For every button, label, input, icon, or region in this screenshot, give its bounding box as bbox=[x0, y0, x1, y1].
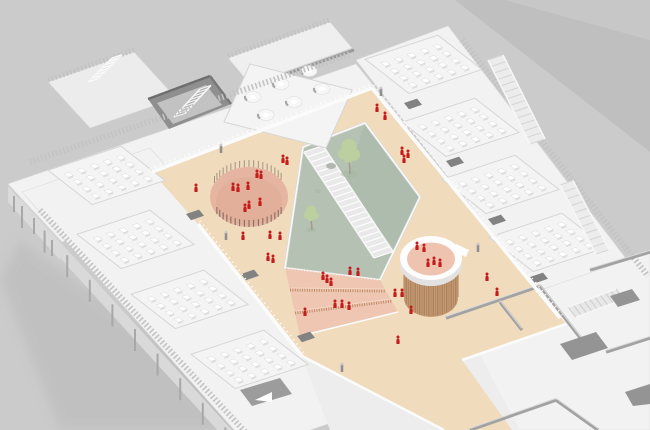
figure-body bbox=[348, 270, 351, 275]
bollard-cap bbox=[220, 144, 223, 147]
bollard-cap bbox=[380, 87, 383, 90]
red-figure bbox=[406, 150, 409, 159]
figure-body bbox=[255, 173, 258, 178]
figure-body bbox=[383, 115, 386, 120]
figure-body bbox=[415, 245, 418, 250]
figure-head bbox=[401, 147, 404, 150]
figure-head bbox=[237, 184, 240, 187]
figure-head bbox=[407, 150, 410, 153]
figure-head bbox=[279, 232, 282, 235]
figure-head bbox=[433, 257, 436, 260]
red-figure bbox=[268, 231, 271, 240]
red-figure bbox=[495, 288, 498, 297]
red-figure bbox=[383, 112, 386, 121]
figure-head bbox=[341, 300, 344, 303]
figure-head bbox=[247, 182, 250, 185]
figure-body bbox=[236, 187, 239, 192]
red-figure bbox=[347, 302, 350, 311]
figure-head bbox=[486, 273, 489, 276]
red-figure bbox=[194, 184, 197, 193]
bollard-cap bbox=[477, 243, 480, 246]
tree-canopy bbox=[307, 215, 313, 221]
figure-head bbox=[416, 242, 419, 245]
bollard bbox=[477, 243, 480, 252]
figure-head bbox=[195, 184, 198, 187]
figure-body bbox=[396, 339, 399, 344]
red-figure bbox=[241, 232, 244, 241]
figure-head bbox=[269, 231, 272, 234]
figure-body bbox=[422, 247, 425, 252]
red-figure bbox=[438, 259, 441, 268]
red-figure bbox=[243, 204, 246, 213]
table-top bbox=[263, 113, 269, 117]
red-figure bbox=[325, 275, 328, 284]
red-figure bbox=[426, 259, 429, 268]
figure-head bbox=[394, 289, 397, 292]
table-top bbox=[319, 87, 325, 91]
figure-head bbox=[272, 255, 275, 258]
bollard-cap bbox=[225, 231, 228, 234]
red-figure bbox=[258, 198, 261, 207]
red-figure bbox=[285, 157, 288, 166]
figure-body bbox=[333, 303, 336, 308]
figure-body bbox=[259, 174, 262, 179]
figure-head bbox=[330, 278, 333, 281]
red-figure bbox=[278, 232, 281, 241]
figure-body bbox=[329, 281, 332, 286]
architectural-axonometric-rendering bbox=[0, 0, 650, 430]
red-figure bbox=[409, 306, 412, 315]
tree-shadow bbox=[306, 228, 317, 233]
red-figure bbox=[393, 289, 396, 298]
red-figure bbox=[321, 272, 324, 281]
figure-body bbox=[243, 207, 246, 212]
bollard bbox=[341, 363, 344, 372]
figure-body bbox=[194, 187, 197, 192]
red-figure bbox=[340, 300, 343, 309]
figure-head bbox=[357, 268, 360, 271]
bollard bbox=[220, 144, 223, 153]
figure-head bbox=[410, 306, 413, 309]
red-figure bbox=[303, 308, 306, 317]
figure-head bbox=[242, 232, 245, 235]
figure-body bbox=[268, 234, 271, 239]
figure-head bbox=[348, 302, 351, 305]
figure-body bbox=[393, 292, 396, 297]
red-figure bbox=[432, 257, 435, 266]
figure-body bbox=[285, 160, 288, 165]
figure-head bbox=[248, 201, 251, 204]
red-figure bbox=[375, 104, 378, 113]
figure-body bbox=[281, 158, 284, 163]
figure-body bbox=[375, 107, 378, 112]
red-figure bbox=[348, 267, 351, 276]
bollard-cap bbox=[341, 363, 344, 366]
rock bbox=[326, 163, 336, 169]
figure-head bbox=[267, 253, 270, 256]
round-table bbox=[286, 97, 302, 108]
tree-canopy bbox=[344, 154, 353, 163]
round-table bbox=[245, 92, 261, 103]
figure-body bbox=[356, 271, 359, 276]
red-figure bbox=[356, 268, 359, 277]
figure-body bbox=[409, 309, 412, 314]
figure-head bbox=[349, 267, 352, 270]
figure-head bbox=[286, 157, 289, 160]
bollard bbox=[225, 231, 228, 240]
red-figure bbox=[422, 244, 425, 253]
round-table bbox=[314, 84, 330, 95]
figure-head bbox=[401, 289, 404, 292]
red-figure bbox=[329, 278, 332, 287]
red-figure bbox=[281, 155, 284, 164]
table-top bbox=[250, 95, 256, 99]
red-figure bbox=[402, 155, 405, 164]
red-figure bbox=[271, 255, 274, 264]
red-figure bbox=[266, 253, 269, 262]
figure-body bbox=[258, 201, 261, 206]
red-figure bbox=[333, 300, 336, 309]
figure-head bbox=[334, 300, 337, 303]
figure-head bbox=[326, 275, 329, 278]
axonometric-scene bbox=[0, 0, 650, 430]
red-figure bbox=[415, 242, 418, 251]
figure-head bbox=[322, 272, 325, 275]
figure-body bbox=[495, 291, 498, 296]
figure-head bbox=[384, 112, 387, 115]
figure-head bbox=[282, 155, 285, 158]
figure-body bbox=[432, 260, 435, 265]
figure-head bbox=[423, 244, 426, 247]
figure-body bbox=[485, 276, 488, 281]
figure-head bbox=[304, 308, 307, 311]
figure-head bbox=[259, 198, 262, 201]
figure-body bbox=[438, 262, 441, 267]
figure-head bbox=[427, 259, 430, 262]
figure-body bbox=[231, 186, 234, 191]
figure-head bbox=[244, 204, 247, 207]
figure-head bbox=[256, 170, 259, 173]
figure-body bbox=[426, 262, 429, 267]
figure-body bbox=[271, 258, 274, 263]
figure-body bbox=[246, 185, 249, 190]
figure-body bbox=[278, 235, 281, 240]
red-figure bbox=[400, 289, 403, 298]
red-figure bbox=[236, 184, 239, 193]
figure-head bbox=[439, 259, 442, 262]
figure-body bbox=[303, 311, 306, 316]
figure-body bbox=[402, 158, 405, 163]
table-top bbox=[291, 100, 297, 104]
figure-body bbox=[266, 256, 269, 261]
red-figure bbox=[255, 170, 258, 179]
figure-body bbox=[321, 275, 324, 280]
tree-shadow bbox=[341, 170, 357, 177]
red-figure bbox=[400, 147, 403, 156]
figure-head bbox=[403, 155, 406, 158]
figure-head bbox=[260, 171, 263, 174]
figure-head bbox=[496, 288, 499, 291]
red-figure bbox=[259, 171, 262, 180]
red-figure bbox=[247, 201, 250, 210]
red-figure bbox=[485, 273, 488, 282]
figure-head bbox=[232, 183, 235, 186]
figure-body bbox=[340, 303, 343, 308]
bollard bbox=[380, 87, 383, 96]
red-figure bbox=[246, 182, 249, 191]
figure-body bbox=[247, 204, 250, 209]
red-figure bbox=[231, 183, 234, 192]
figure-body bbox=[241, 235, 244, 240]
figure-body bbox=[406, 153, 409, 158]
figure-head bbox=[376, 104, 379, 107]
figure-body bbox=[325, 278, 328, 283]
table-top bbox=[278, 82, 284, 86]
figure-body bbox=[400, 292, 403, 297]
rock bbox=[315, 189, 321, 193]
round-table bbox=[258, 110, 274, 121]
platform-deck bbox=[407, 243, 455, 276]
red-figure bbox=[396, 336, 399, 345]
figure-body bbox=[400, 150, 403, 155]
figure-head bbox=[397, 336, 400, 339]
figure-body bbox=[347, 305, 350, 310]
